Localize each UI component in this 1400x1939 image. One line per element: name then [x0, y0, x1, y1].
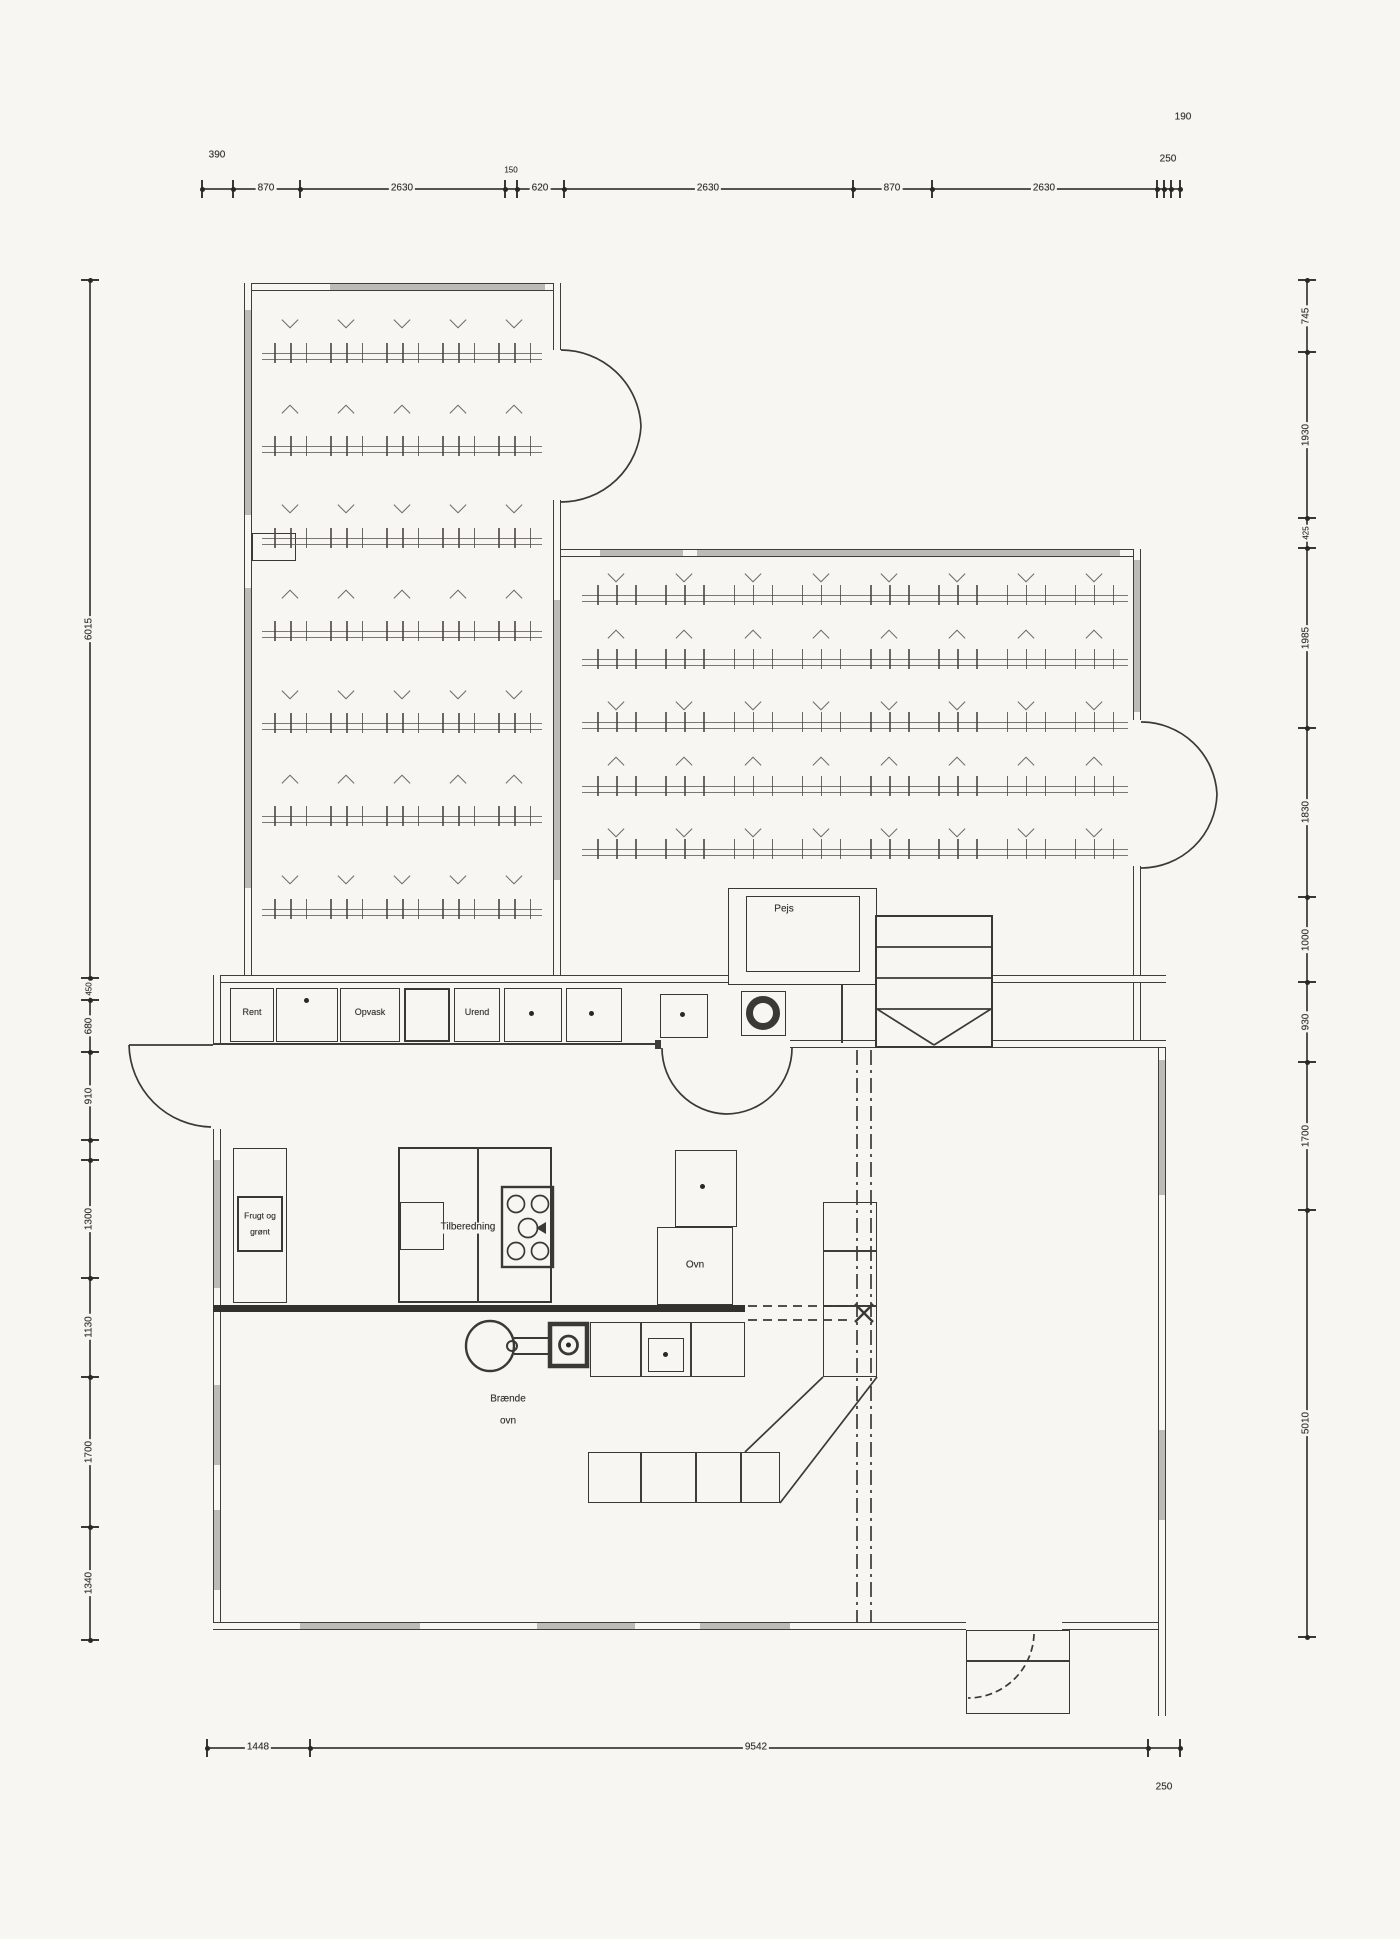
- chair-tick: [458, 713, 460, 733]
- dim-right-745: 745: [1302, 306, 1313, 327]
- chair-tick: [753, 712, 755, 732]
- pantry-frugt-box: [237, 1196, 283, 1252]
- chair-tick: [362, 806, 364, 826]
- chair-chevron: [282, 404, 299, 421]
- room-a-left-window-2: [244, 588, 252, 888]
- chair-tick: [386, 343, 388, 363]
- chair-chevron: [949, 693, 966, 710]
- dim-right-425: 425: [1303, 524, 1312, 541]
- dim-tick-dot: [503, 187, 508, 192]
- chair-chevron: [881, 820, 898, 837]
- chair-tick: [957, 839, 959, 859]
- chair-chevron: [282, 312, 299, 329]
- label-braende-line1: Brænde: [488, 1395, 528, 1406]
- chair-tick: [889, 712, 891, 732]
- serving-counter-horizontal: [588, 1452, 780, 1503]
- chair-tick: [458, 343, 460, 363]
- chair-tick: [1094, 585, 1096, 605]
- chair-tick: [442, 436, 444, 456]
- chair-tick: [530, 528, 532, 548]
- chair-tick: [665, 649, 667, 669]
- chair-tick: [665, 585, 667, 605]
- seating-area-left: [262, 305, 542, 953]
- label-ovn: Ovn: [684, 1261, 706, 1272]
- chair-chevron: [338, 404, 355, 421]
- dim-right-930: 930: [1302, 1012, 1313, 1033]
- chair-tick: [802, 649, 804, 669]
- dim-top-870b: 870: [882, 184, 903, 195]
- chair-tick: [290, 528, 292, 548]
- chair-tick: [330, 436, 332, 456]
- chair-chevron: [506, 497, 523, 514]
- chair-tick: [274, 436, 276, 456]
- chair-chevron: [1085, 693, 1102, 710]
- chair-tick: [274, 343, 276, 363]
- dim-top-2630b: 2630: [695, 184, 721, 195]
- chair-tick: [1026, 712, 1028, 732]
- chair-tick: [665, 839, 667, 859]
- chair-chevron: [506, 404, 523, 421]
- chair-tick: [635, 649, 637, 669]
- dim-left-680: 680: [85, 1016, 96, 1037]
- mid-cross-wall: [213, 975, 1166, 983]
- chair-chevron: [450, 589, 467, 606]
- chair-chevron: [608, 757, 625, 774]
- chair-tick: [402, 621, 404, 641]
- chair-tick: [870, 649, 872, 669]
- chair-tick: [274, 806, 276, 826]
- chair-tick: [498, 806, 500, 826]
- chair-tick: [889, 649, 891, 669]
- chair-tick: [976, 649, 978, 669]
- chair-tick: [1026, 839, 1028, 859]
- serving-diagonal-inner: [745, 1377, 823, 1452]
- chair-tick: [976, 712, 978, 732]
- chair-tick: [802, 776, 804, 796]
- chair-tick: [274, 899, 276, 919]
- chair-tick: [330, 621, 332, 641]
- chair-tick: [870, 585, 872, 605]
- dim-tick-dot: [1305, 1635, 1310, 1640]
- dim-tick-dot: [1305, 516, 1310, 521]
- chair-tick: [772, 649, 774, 669]
- chair-tick: [1045, 712, 1047, 732]
- chair-tick: [306, 436, 308, 456]
- counter-divider-1: [640, 1322, 642, 1377]
- chair-tick: [1075, 585, 1077, 605]
- chair-chevron: [282, 682, 299, 699]
- chair-tick: [889, 839, 891, 859]
- chair-tick: [957, 712, 959, 732]
- chair-chevron: [1017, 757, 1034, 774]
- chair-tick: [514, 621, 516, 641]
- chair-tick: [362, 713, 364, 733]
- dim-tick-dot: [930, 187, 935, 192]
- chair-tick: [870, 712, 872, 732]
- chair-tick: [346, 528, 348, 548]
- chair-tick: [290, 713, 292, 733]
- chair-tick: [402, 528, 404, 548]
- chair-tick: [330, 899, 332, 919]
- dim-tick-dot: [88, 1158, 93, 1163]
- chair-tick: [346, 806, 348, 826]
- chair-chevron: [812, 693, 829, 710]
- chair-tick: [514, 713, 516, 733]
- chair-chevron: [812, 566, 829, 583]
- chair-tick: [458, 899, 460, 919]
- dim-tick-dot: [88, 1638, 93, 1643]
- island-sub-box: [400, 1202, 444, 1250]
- chair-tick: [386, 621, 388, 641]
- chair-tick: [772, 776, 774, 796]
- chair-chevron: [282, 589, 299, 606]
- chair-tick: [442, 806, 444, 826]
- dim-tick-dot: [1305, 895, 1310, 900]
- room-a-right-wall-upper: [553, 283, 561, 350]
- chair-tick: [362, 899, 364, 919]
- chair-tick: [418, 713, 420, 733]
- door-arc-left-exit: [129, 1045, 211, 1127]
- dim-tick-dot: [1305, 1060, 1310, 1065]
- dim-tick-dot: [231, 187, 236, 192]
- chair-tick: [635, 585, 637, 605]
- serving-divider-2: [823, 1305, 877, 1307]
- chair-tick: [684, 839, 686, 859]
- chair-tick: [498, 713, 500, 733]
- dim-top-390: 390: [207, 151, 228, 162]
- chair-tick: [514, 528, 516, 548]
- bottom-window-3: [700, 1622, 790, 1630]
- dim-tick-dot: [1169, 187, 1174, 192]
- chair-tick: [1094, 712, 1096, 732]
- room-a-right-window: [553, 600, 561, 880]
- chair-tick: [597, 649, 599, 669]
- chair-chevron: [338, 867, 355, 884]
- chair-tick: [597, 585, 599, 605]
- chair-chevron: [1017, 820, 1034, 837]
- counter-box: [276, 988, 338, 1042]
- chair-tick: [635, 712, 637, 732]
- chair-tick: [802, 585, 804, 605]
- chair-chevron: [338, 589, 355, 606]
- lower-right-window-1: [1158, 1060, 1166, 1195]
- chair-tick: [597, 712, 599, 732]
- fireplace-inner: [746, 896, 860, 972]
- chair-tick: [386, 713, 388, 733]
- chair-tick: [386, 899, 388, 919]
- chair-chevron: [949, 566, 966, 583]
- serving-h-divider-3: [740, 1452, 742, 1503]
- chair-tick: [665, 776, 667, 796]
- chair-chevron: [949, 820, 966, 837]
- chair-tick: [802, 712, 804, 732]
- room-b-right-window: [1133, 560, 1141, 712]
- chair-chevron: [608, 693, 625, 710]
- chair-tick: [498, 436, 500, 456]
- chair-tick: [346, 899, 348, 919]
- wood-oven-center-dot: [566, 1343, 571, 1348]
- chair-tick: [734, 776, 736, 796]
- chair-chevron: [676, 629, 693, 646]
- chair-tick: [635, 776, 637, 796]
- label-frugt-line1: Frugt og: [242, 1211, 278, 1220]
- chair-tick: [442, 621, 444, 641]
- chair-tick: [957, 776, 959, 796]
- dim-left-1130: 1130: [85, 1314, 96, 1340]
- door-arc-room-b-leaf1: [1141, 722, 1217, 794]
- room-a-top-window: [330, 283, 545, 291]
- chair-tick: [597, 839, 599, 859]
- chair-tick: [976, 776, 978, 796]
- lower-left-window-2: [213, 1385, 221, 1465]
- chair-tick: [840, 585, 842, 605]
- chair-tick: [346, 436, 348, 456]
- wood-oven-pipe-joint: [507, 1341, 517, 1351]
- chair-tick: [616, 585, 618, 605]
- vestibule-step: [966, 1660, 1070, 1662]
- chair-tick: [1094, 649, 1096, 669]
- chair-tick: [684, 712, 686, 732]
- door-jamb: [655, 1040, 661, 1049]
- stove-box: [741, 991, 786, 1036]
- chair-tick: [1075, 839, 1077, 859]
- burner-dot-2: [589, 1011, 594, 1016]
- dim-right-1700: 1700: [1302, 1123, 1313, 1149]
- dim-top-150: 150: [502, 167, 519, 176]
- chair-chevron: [676, 693, 693, 710]
- chair-tick: [1094, 839, 1096, 859]
- chair-tick: [306, 806, 308, 826]
- dim-tick-dot: [88, 998, 93, 1003]
- lower-left-window-1: [213, 1160, 221, 1288]
- lower-left-wall-upper: [213, 975, 221, 1043]
- chair-chevron: [450, 682, 467, 699]
- chair-tick: [840, 712, 842, 732]
- bottom-window-2: [537, 1622, 635, 1630]
- chair-tick: [1007, 839, 1009, 859]
- chair-tick: [514, 343, 516, 363]
- dim-tick-dot: [1305, 1208, 1310, 1213]
- dim-tick-dot: [88, 1050, 93, 1055]
- chair-tick: [474, 899, 476, 919]
- chair-tick: [821, 585, 823, 605]
- chair-tick: [703, 712, 705, 732]
- chair-tick: [1026, 776, 1028, 796]
- chair-tick: [306, 621, 308, 641]
- door-arc-kitchen-leaf2: [726, 1048, 792, 1114]
- chair-chevron: [1017, 693, 1034, 710]
- chair-tick: [734, 585, 736, 605]
- chair-chevron: [450, 497, 467, 514]
- chair-chevron: [744, 566, 761, 583]
- chair-tick: [938, 649, 940, 669]
- chair-tick: [274, 528, 276, 548]
- chair-chevron: [282, 497, 299, 514]
- chair-tick: [1075, 649, 1077, 669]
- kitchen-bottom-wall: [213, 1305, 745, 1312]
- chair-tick: [290, 436, 292, 456]
- dim-bottom-250: 250: [1154, 1783, 1175, 1794]
- chair-tick: [1045, 776, 1047, 796]
- dimension-line-bottom: [207, 1747, 1180, 1749]
- chair-tick: [753, 649, 755, 669]
- chair-tick: [474, 343, 476, 363]
- chair-tick: [458, 806, 460, 826]
- door-arc-kitchen-leaf1: [662, 1048, 726, 1114]
- chair-tick: [346, 713, 348, 733]
- chair-tick: [616, 776, 618, 796]
- chair-tick: [1113, 585, 1115, 605]
- chair-tick: [684, 776, 686, 796]
- chair-chevron: [608, 629, 625, 646]
- chair-tick: [1094, 776, 1096, 796]
- kitchen-partition: [841, 983, 843, 1043]
- chair-tick: [530, 806, 532, 826]
- chair-tick: [290, 621, 292, 641]
- chair-chevron: [1085, 820, 1102, 837]
- dim-top-620: 620: [530, 184, 551, 195]
- chair-chevron: [608, 820, 625, 837]
- chair-tick: [498, 621, 500, 641]
- dim-tick-dot: [205, 1746, 210, 1751]
- dim-tick-dot: [88, 1138, 93, 1143]
- room-b-top-window-1: [600, 549, 683, 557]
- dim-tick-dot: [851, 187, 856, 192]
- chair-tick: [402, 343, 404, 363]
- dim-tick-dot: [1305, 350, 1310, 355]
- chair-tick: [1113, 839, 1115, 859]
- dim-left-1300: 1300: [85, 1206, 96, 1232]
- dim-right-1930: 1930: [1302, 422, 1313, 448]
- wood-oven-ring: [560, 1336, 578, 1354]
- dim-top-2630c: 2630: [1031, 184, 1057, 195]
- chair-tick: [635, 839, 637, 859]
- chair-tick: [703, 776, 705, 796]
- chair-tick: [418, 436, 420, 456]
- chair-chevron: [1085, 629, 1102, 646]
- chair-tick: [889, 585, 891, 605]
- chair-tick: [330, 806, 332, 826]
- chair-tick: [684, 585, 686, 605]
- oven-dot: [700, 1184, 705, 1189]
- chair-chevron: [949, 757, 966, 774]
- chair-tick: [290, 899, 292, 919]
- wood-oven-pipe: [514, 1338, 548, 1354]
- chair-tick: [530, 343, 532, 363]
- door-arc-room-a-leaf1: [561, 350, 641, 426]
- chair-chevron: [338, 775, 355, 792]
- dim-tick-dot: [1162, 187, 1167, 192]
- chair-chevron: [282, 775, 299, 792]
- bottom-window-1: [300, 1622, 420, 1630]
- chair-tick: [938, 712, 940, 732]
- chair-tick: [514, 436, 516, 456]
- chair-chevron: [676, 566, 693, 583]
- chair-tick: [306, 899, 308, 919]
- chair-tick: [362, 528, 364, 548]
- dim-tick-dot: [1305, 546, 1310, 551]
- chair-chevron: [608, 566, 625, 583]
- chair-tick: [889, 776, 891, 796]
- dim-tick-dot: [1178, 1746, 1183, 1751]
- chair-tick: [386, 806, 388, 826]
- dim-tick-dot: [515, 187, 520, 192]
- label-opvask: Opvask: [353, 1008, 388, 1018]
- dim-tick-dot: [562, 187, 567, 192]
- chair-tick: [474, 713, 476, 733]
- dim-left-1700: 1700: [85, 1439, 96, 1465]
- chair-chevron: [450, 404, 467, 421]
- dim-tick-dot: [1305, 726, 1310, 731]
- chair-tick: [274, 621, 276, 641]
- chair-chevron: [812, 820, 829, 837]
- lower-right-wall-stub: [1158, 1622, 1166, 1716]
- chair-tick: [840, 776, 842, 796]
- label-urend: Urend: [463, 1008, 492, 1018]
- chair-tick: [1075, 712, 1077, 732]
- chair-chevron: [394, 404, 411, 421]
- chair-tick: [703, 585, 705, 605]
- dim-right-1000: 1000: [1302, 927, 1313, 953]
- sink-dot-3: [663, 1352, 668, 1357]
- dim-tick-dot: [88, 1525, 93, 1530]
- wood-oven-body: [550, 1324, 587, 1366]
- chair-chevron: [506, 589, 523, 606]
- chair-chevron: [744, 820, 761, 837]
- dim-left-6015: 6015: [85, 616, 96, 642]
- chair-tick: [772, 585, 774, 605]
- chair-tick: [498, 899, 500, 919]
- chair-tick: [530, 621, 532, 641]
- chair-chevron: [744, 757, 761, 774]
- kitchen-counter-baseline: [213, 1043, 660, 1045]
- chair-tick: [386, 436, 388, 456]
- dim-left-1340: 1340: [85, 1570, 96, 1596]
- sink-dot: [304, 998, 309, 1003]
- dim-left-910: 910: [85, 1086, 96, 1107]
- chair-chevron: [450, 312, 467, 329]
- chair-tick: [802, 839, 804, 859]
- chair-tick: [330, 528, 332, 548]
- chair-tick: [703, 649, 705, 669]
- chair-tick: [1113, 712, 1115, 732]
- chair-chevron: [450, 867, 467, 884]
- chair-tick: [498, 528, 500, 548]
- chair-tick: [474, 806, 476, 826]
- chair-tick: [753, 839, 755, 859]
- chair-chevron: [1085, 566, 1102, 583]
- dim-left-450: 450: [86, 980, 95, 997]
- chair-chevron: [676, 820, 693, 837]
- chair-tick: [386, 528, 388, 548]
- serving-h-divider-2: [695, 1452, 697, 1503]
- chair-tick: [753, 585, 755, 605]
- dim-tick-dot: [298, 187, 303, 192]
- chair-tick: [1026, 649, 1028, 669]
- dim-right-5010: 5010: [1302, 1410, 1313, 1436]
- label-tilberedning: Tilberedning: [439, 1223, 498, 1234]
- chair-tick: [908, 585, 910, 605]
- chair-tick: [402, 713, 404, 733]
- dim-tick-dot: [88, 1375, 93, 1380]
- oven-top-box: [675, 1150, 737, 1227]
- chair-tick: [1113, 776, 1115, 796]
- dim-tick-dot: [88, 278, 93, 283]
- chair-tick: [530, 436, 532, 456]
- chair-tick: [597, 776, 599, 796]
- chair-chevron: [394, 589, 411, 606]
- chair-chevron: [338, 682, 355, 699]
